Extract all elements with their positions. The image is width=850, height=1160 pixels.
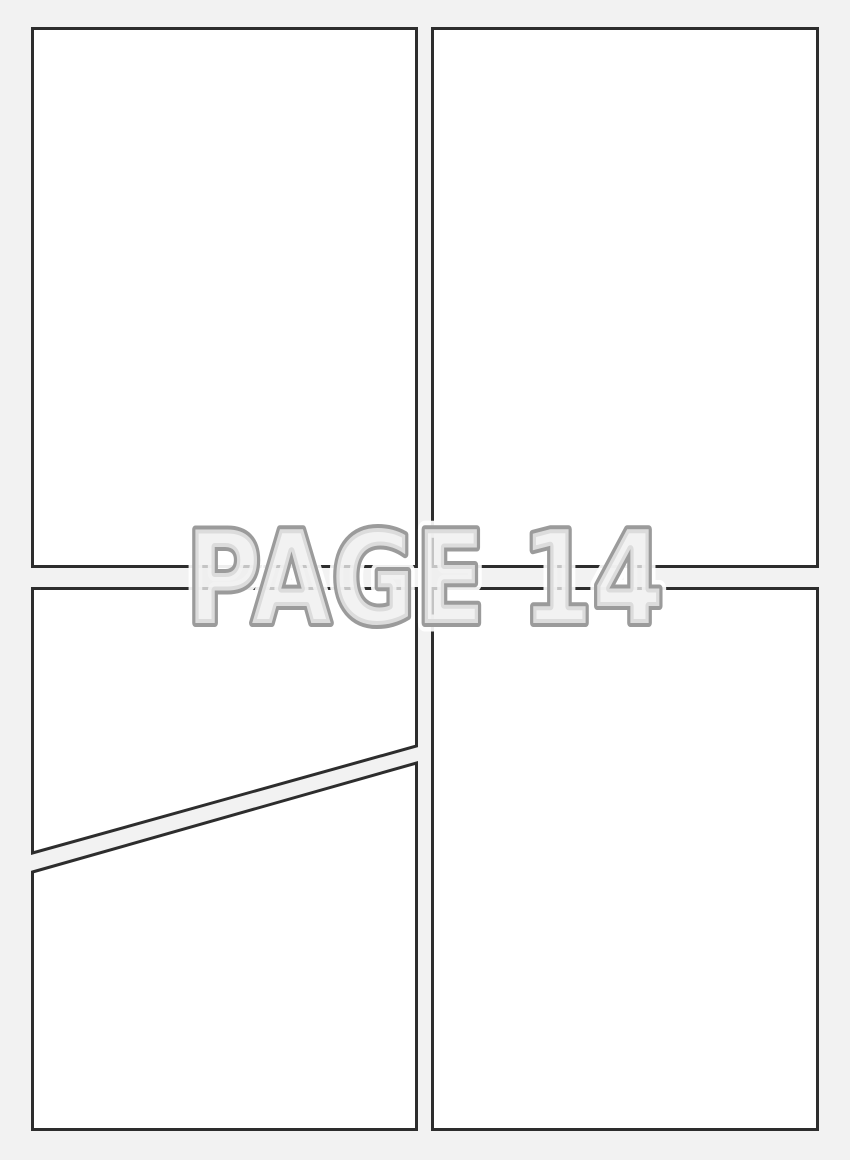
page-number-watermark: PAGE 14 PAGE 14 PAGE 14 — [186, 505, 664, 654]
page-canvas: PAGE 14 PAGE 14 PAGE 14 — [0, 0, 850, 1160]
panel-top-right — [433, 29, 818, 567]
panel-bottom-right — [433, 589, 818, 1130]
page-label: PAGE 14 — [186, 505, 664, 654]
panel-top-left — [33, 29, 417, 567]
comic-page-template: PAGE 14 PAGE 14 PAGE 14 — [0, 0, 850, 1160]
